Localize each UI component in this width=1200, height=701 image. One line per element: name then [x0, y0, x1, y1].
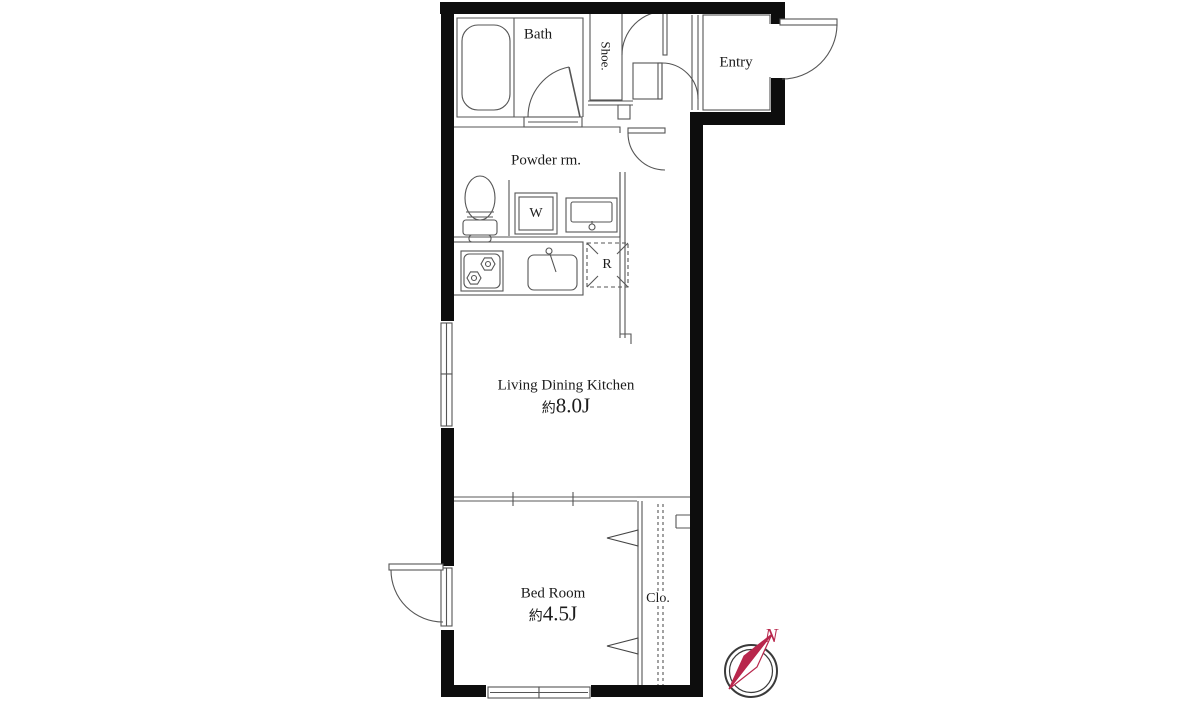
- bathtub-icon: [462, 25, 510, 110]
- burner-icon-2: [467, 272, 481, 284]
- vanity: [566, 198, 617, 232]
- fridge-corner-2: [617, 243, 628, 254]
- hall-wall-stub: [618, 105, 630, 119]
- powder-door-leaf: [628, 128, 665, 133]
- entry-door-gap: [769, 24, 787, 77]
- hall-door-arc-1: [622, 11, 666, 55]
- bath-label: Bath: [524, 28, 552, 43]
- hall-door-arc-2: [662, 63, 698, 99]
- bedroom-size: 約4.5J: [529, 604, 577, 625]
- faucet-stem: [550, 254, 556, 272]
- toilet-base: [469, 235, 491, 242]
- bath-door-arc: [528, 67, 569, 117]
- bath-door-leaf: [569, 67, 580, 117]
- entry-label: Entry: [719, 56, 752, 71]
- ldk-label: Living Dining Kitchen: [498, 379, 635, 394]
- bedroom-size-prefix: 約: [529, 610, 543, 625]
- bedroom-size-value: 4.5J: [543, 602, 577, 626]
- ldk-size-value: 8.0J: [556, 394, 590, 418]
- toilet-icon: [465, 176, 495, 220]
- wall-top: [440, 2, 785, 14]
- closet-label: Clo.: [644, 592, 672, 606]
- closet-door-marker-2: [607, 638, 638, 654]
- walls: [440, 2, 785, 697]
- floor-plan: Bath Shoe. Entry Powder rm. W R Living D…: [0, 0, 1200, 701]
- fridge-corner-3: [587, 276, 598, 287]
- bedroom-label: Bed Room: [521, 587, 586, 602]
- floor-plan-drawing: [0, 0, 1200, 701]
- bed-door-leaf: [389, 564, 443, 570]
- burner-center-2: [472, 276, 477, 281]
- closet-notch: [676, 515, 690, 528]
- ldk-size-prefix: 約: [542, 402, 556, 417]
- hall-door-leaf-2: [658, 63, 662, 99]
- compass-north-label: N: [764, 626, 777, 646]
- ldk-size: 約8.0J: [542, 396, 590, 417]
- vanity-drain: [589, 224, 595, 230]
- stove-icon: [461, 251, 503, 291]
- entry-door-leaf: [780, 19, 837, 25]
- wall-right: [690, 112, 703, 697]
- washer-label: W: [529, 207, 542, 221]
- fridge-corner-1: [587, 243, 598, 254]
- hall-door-leaf-1: [663, 11, 667, 55]
- burner-icon-1: [481, 258, 495, 270]
- faucet-icon: [546, 248, 552, 254]
- closet-door-marker-1: [607, 530, 638, 546]
- toilet-tank: [463, 220, 497, 235]
- shoe-label: Shoe.: [600, 41, 613, 70]
- fridge-corner-4: [617, 276, 628, 287]
- vanity-basin: [571, 202, 612, 222]
- powder-door-arc: [628, 133, 665, 170]
- fridge-label: R: [602, 258, 611, 272]
- kitchen-counter: [452, 242, 583, 295]
- burner-center-1: [486, 262, 491, 267]
- entry-door-arc: [782, 25, 837, 79]
- bed-door-arc: [391, 570, 443, 622]
- wall-entry-bottom: [690, 112, 785, 125]
- powder-label: Powder rm.: [511, 154, 581, 169]
- bath-room-outline: [457, 18, 583, 117]
